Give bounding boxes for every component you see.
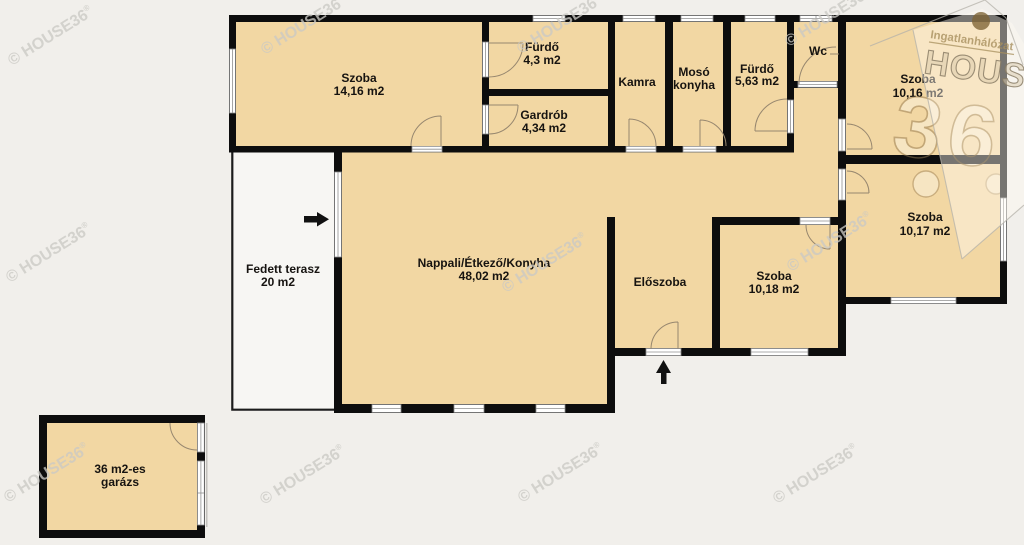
svg-text:5,63 m2: 5,63 m2 [735, 74, 779, 88]
svg-text:20 m2: 20 m2 [261, 275, 295, 289]
svg-text:4,3 m2: 4,3 m2 [523, 53, 561, 67]
svg-text:garázs: garázs [101, 475, 139, 489]
svg-text:Szoba: Szoba [341, 71, 377, 85]
svg-text:36 m2-es: 36 m2-es [94, 462, 146, 476]
svg-text:konyha: konyha [673, 78, 715, 92]
svg-text:36: 36 [887, 77, 1010, 188]
svg-text:Előszoba: Előszoba [634, 275, 687, 289]
svg-text:10,17 m2: 10,17 m2 [900, 224, 951, 238]
svg-text:Fedett terasz: Fedett terasz [246, 262, 320, 276]
svg-text:10,18 m2: 10,18 m2 [749, 282, 800, 296]
svg-text:14,16 m2: 14,16 m2 [334, 84, 385, 98]
svg-text:Szoba: Szoba [756, 269, 792, 283]
svg-text:Mosó: Mosó [678, 65, 709, 79]
svg-text:4,34 m2: 4,34 m2 [522, 121, 566, 135]
svg-text:Kamra: Kamra [618, 75, 656, 89]
svg-text:Gardrób: Gardrób [520, 108, 567, 122]
svg-text:Szoba: Szoba [907, 210, 943, 224]
svg-text:Wc: Wc [809, 44, 827, 58]
